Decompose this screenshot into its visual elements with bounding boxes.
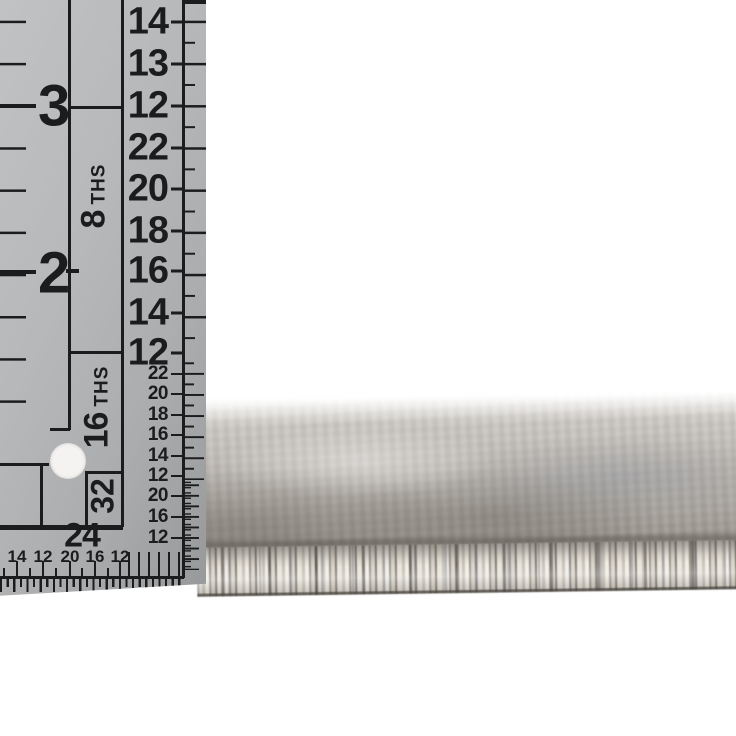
scale-number: 12	[128, 85, 182, 128]
scale-number: 14	[128, 292, 182, 335]
bottom-tick-minor	[29, 568, 31, 577]
inch-scale-ticks	[0, 0, 26, 410]
leader-dash	[171, 475, 182, 478]
sixteenths-box-bottom	[50, 428, 70, 431]
leader-dash	[171, 229, 182, 233]
leader-dash	[171, 393, 182, 396]
scale-number: 20	[128, 168, 182, 211]
leader-dash	[171, 187, 182, 191]
scale-number-small: 22	[148, 363, 182, 385]
scale-number: 18	[128, 210, 182, 253]
leader-dash	[171, 62, 182, 66]
inch-3-mark-left	[0, 104, 36, 108]
leader-dash	[171, 351, 182, 355]
bottom-scale-number: 20	[61, 547, 80, 567]
eighths-label: 8THS	[75, 164, 114, 229]
scale-number-small: 14	[148, 445, 182, 467]
bottom-scale-box-top	[0, 525, 123, 530]
scale-number: 22	[128, 127, 182, 170]
eighths-box-bottom	[68, 351, 122, 354]
leader-dash	[171, 414, 182, 417]
bottom-scale-number: 12	[34, 547, 53, 567]
rug-edge-fibers	[197, 540, 736, 597]
inch-number: 2	[38, 240, 68, 307]
bottom-scale-spine	[0, 576, 184, 579]
rug	[195, 394, 736, 602]
scale-number-small: 16	[148, 506, 182, 528]
fourths-eighths-ticks	[182, 0, 206, 354]
bottom-scale-number: 12	[111, 547, 130, 567]
rug-top-surface	[195, 394, 736, 550]
column-divider-left	[68, 0, 71, 430]
column-divider-right	[121, 0, 124, 527]
bottom-scale-ticks-short	[0, 578, 184, 587]
eighths-box-top	[68, 106, 122, 109]
sixteenths-ticks	[182, 354, 206, 480]
ruler-top-edge-mark	[182, 0, 206, 4]
ruler: 3 2 14 13 12 22 20 18 16 14 12 22 20 18 …	[0, 0, 206, 600]
bottom-tick-minor	[55, 568, 57, 577]
bottom-scale-number: 14	[8, 547, 27, 567]
inch-2-mark-left	[0, 270, 36, 274]
scale-number-small: 12	[148, 465, 182, 487]
leader-dash	[171, 455, 182, 458]
leader-dash	[171, 20, 182, 24]
sixteenths-label: 16THS	[78, 366, 117, 449]
thirtyseconds-label: 32	[85, 478, 122, 514]
scale-number-small: 16	[148, 424, 182, 446]
leader-dash	[171, 104, 182, 108]
leader-dash	[171, 537, 182, 540]
bottom-scale-ticks-inner	[128, 552, 182, 577]
bottom-tick-minor	[3, 568, 5, 577]
scale-number-small: 18	[148, 404, 182, 426]
scale-number: 14	[128, 1, 182, 44]
leader-dash	[171, 311, 182, 315]
thirtyseconds-box-top	[85, 471, 123, 474]
leader-dash	[171, 269, 182, 273]
product-photo: 3 2 14 13 12 22 20 18 16 14 12 22 20 18 …	[0, 0, 736, 736]
leader-dash	[171, 146, 182, 150]
scale-number: 13	[128, 43, 182, 86]
scale-spine	[182, 0, 185, 578]
scale-number-small: 20	[148, 485, 182, 507]
scale-number-small: 20	[148, 383, 182, 405]
bottom-scale-number: 16	[86, 547, 105, 567]
leader-dash	[171, 495, 182, 498]
corner-box-line-v	[40, 463, 43, 529]
inch-number: 3	[38, 73, 68, 140]
thirtyseconds-ticks	[182, 480, 206, 570]
bottom-tick-minor	[81, 568, 83, 577]
leader-dash	[171, 434, 182, 437]
scale-number: 16	[128, 250, 182, 293]
bottom-tick-minor	[107, 568, 109, 577]
leader-dash	[171, 516, 182, 519]
leader-dash	[171, 373, 182, 376]
scale-number-small: 12	[148, 527, 182, 549]
